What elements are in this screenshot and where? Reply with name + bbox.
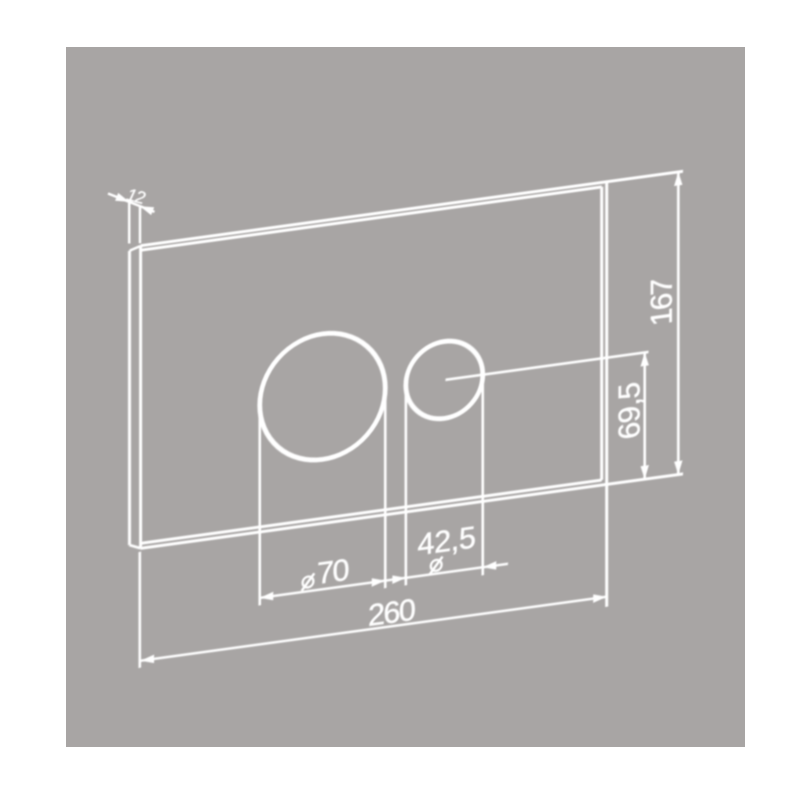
svg-text:70: 70 <box>317 553 348 591</box>
svg-text:260: 260 <box>368 593 415 633</box>
svg-text:167: 167 <box>645 276 679 327</box>
svg-text:69,5: 69,5 <box>613 381 647 442</box>
